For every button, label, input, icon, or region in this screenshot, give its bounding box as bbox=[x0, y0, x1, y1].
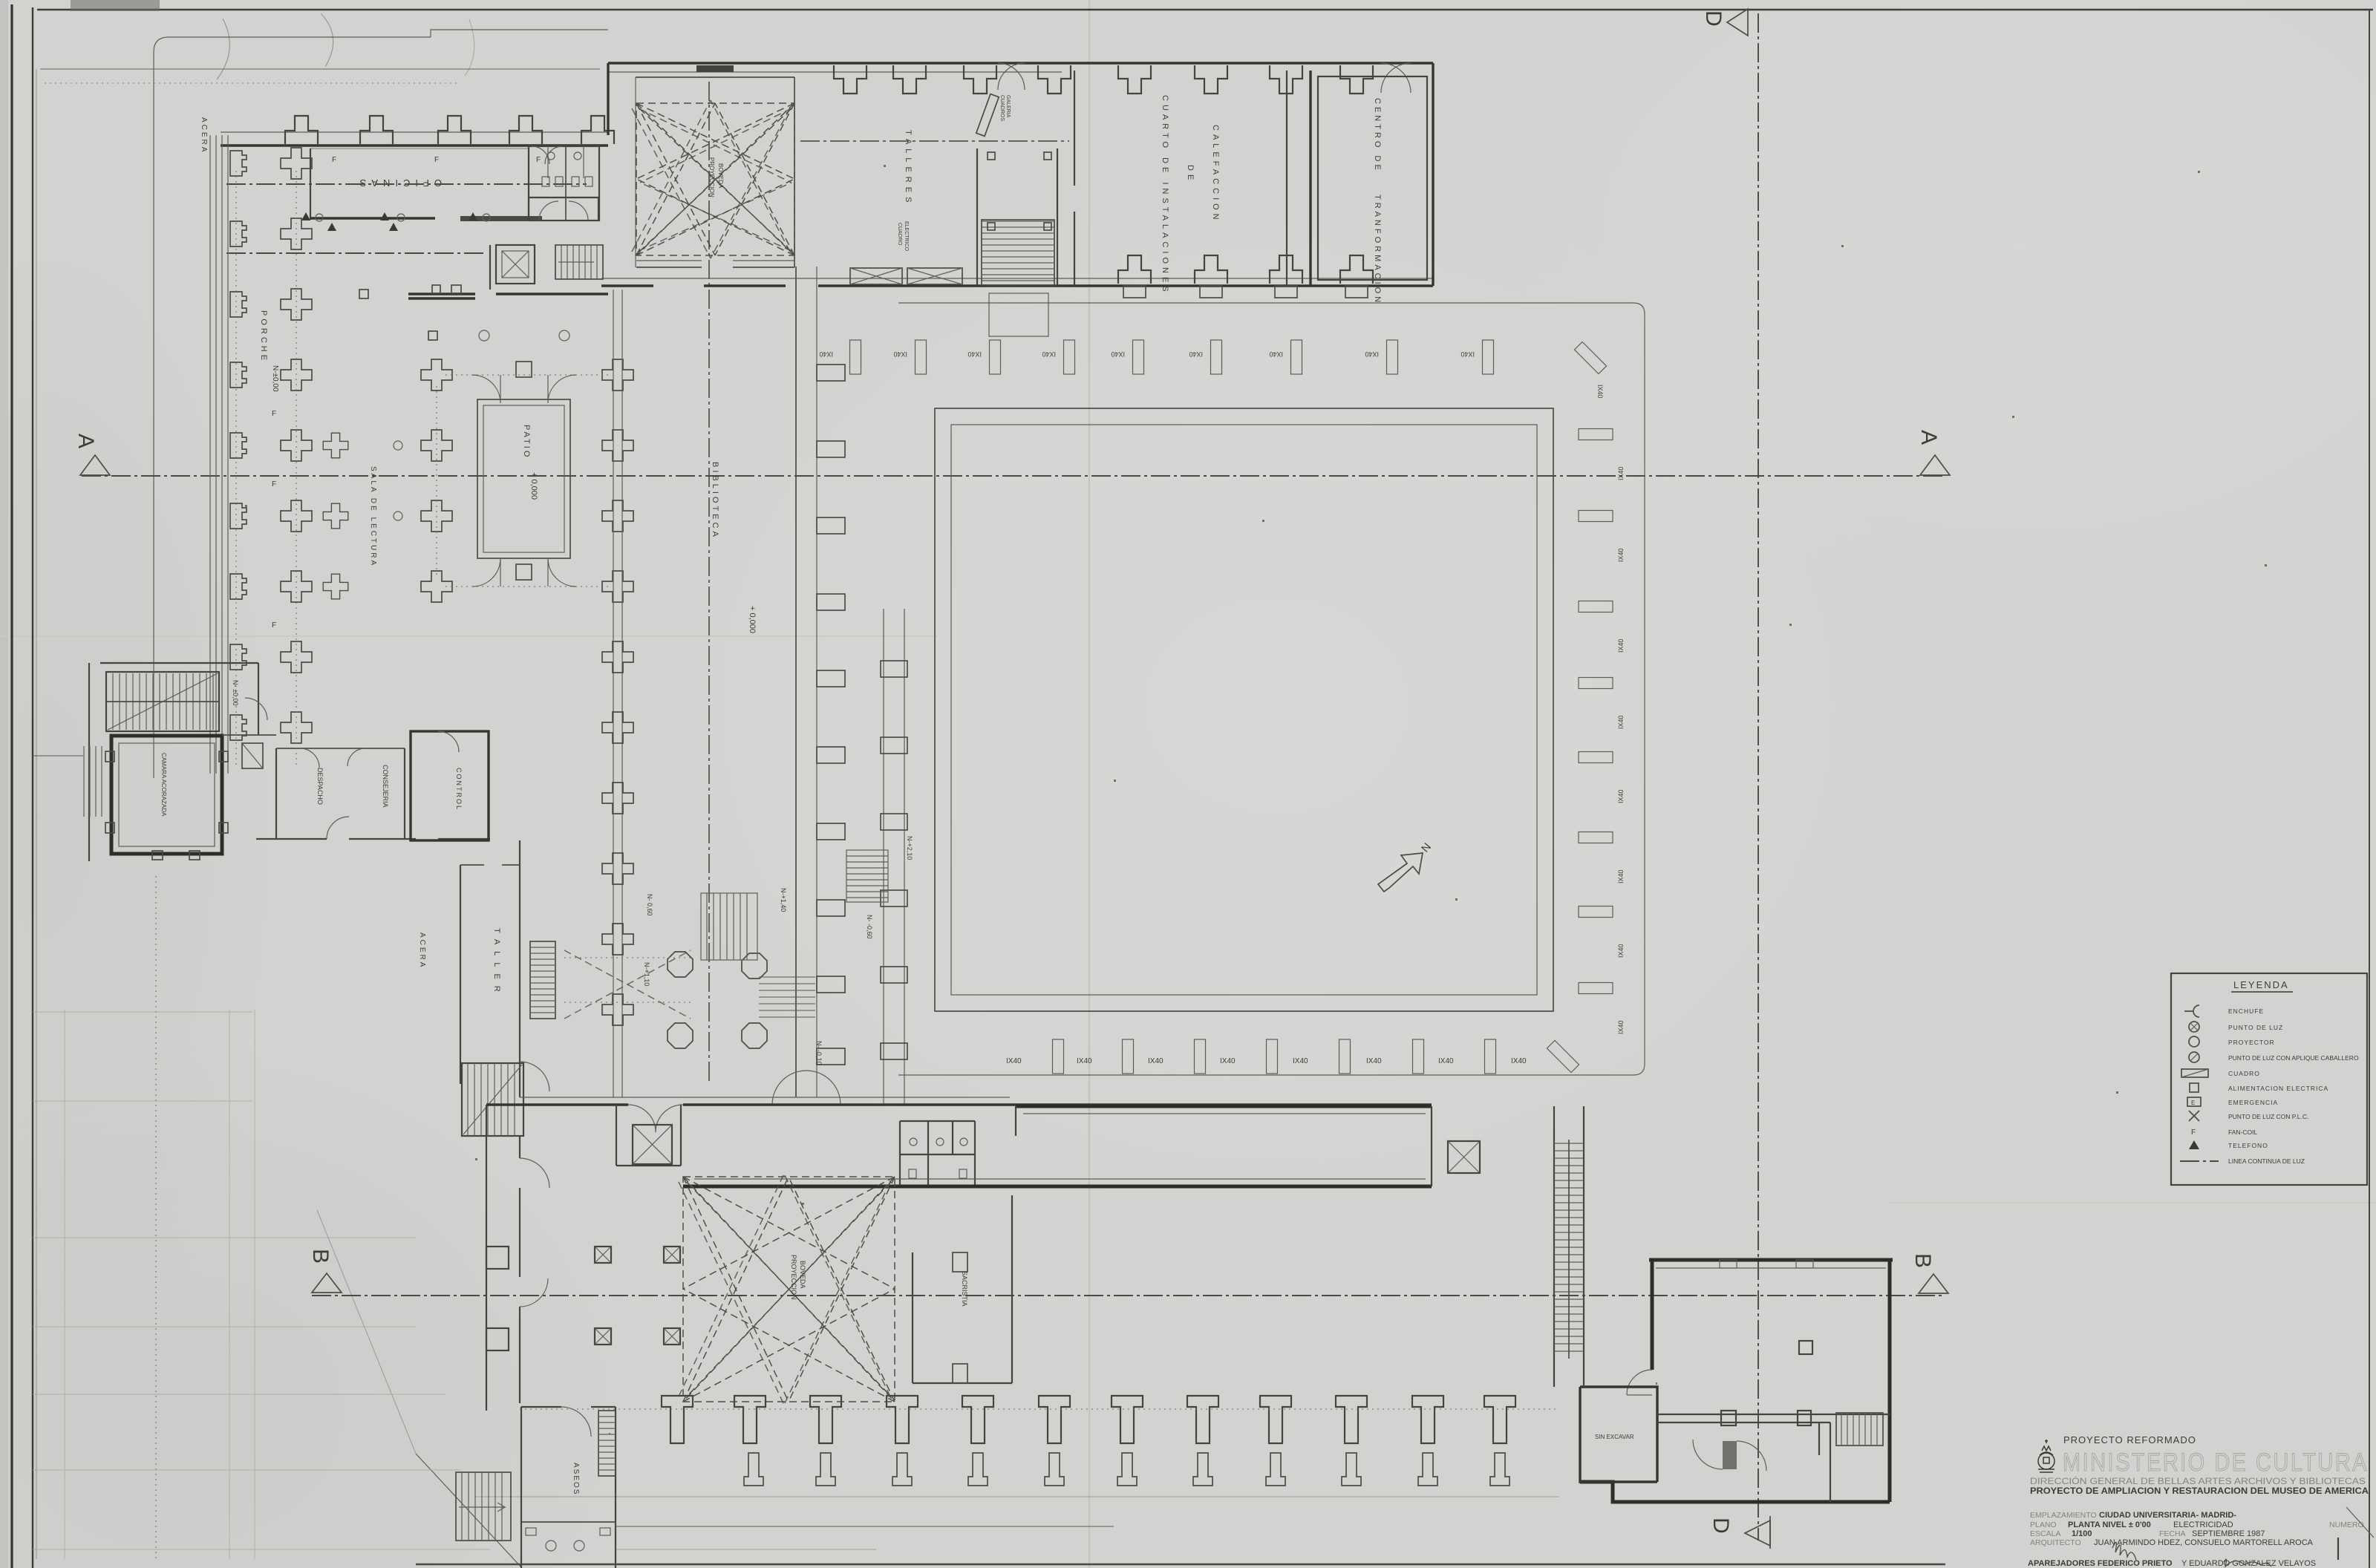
svg-text:CALEFACCION: CALEFACCION bbox=[1211, 125, 1220, 223]
svg-text:F: F bbox=[272, 480, 276, 489]
svg-text:SACRISTIA: SACRISTIA bbox=[961, 1271, 968, 1307]
svg-text:IX40: IX40 bbox=[1617, 466, 1625, 480]
svg-text:IX40: IX40 bbox=[1617, 944, 1625, 958]
svg-text:FAN-COIL: FAN-COIL bbox=[2228, 1128, 2257, 1136]
svg-text:IX40: IX40 bbox=[1365, 350, 1379, 358]
svg-text:E: E bbox=[2191, 1100, 2195, 1106]
svg-text:CONTROL: CONTROL bbox=[455, 768, 463, 811]
svg-text:B: B bbox=[1910, 1253, 1935, 1268]
svg-text:JUAN ARMINDO HDEZ, CONSUELO: JUAN ARMINDO HDEZ, CONSUELO MARTORELL AR… bbox=[2094, 1538, 2314, 1547]
svg-text:DE: DE bbox=[1186, 165, 1195, 183]
svg-text:TRANFORMACION: TRANFORMACION bbox=[1373, 195, 1382, 305]
svg-text:F: F bbox=[2191, 1128, 2196, 1137]
svg-text:SEPTIEMBRE 1987: SEPTIEMBRE 1987 bbox=[2192, 1529, 2265, 1538]
svg-text:ELECTRICO: ELECTRICO bbox=[904, 221, 909, 252]
svg-text:LINEA CONTINUA DE LUZ: LINEA CONTINUA DE LUZ bbox=[2228, 1157, 2305, 1165]
svg-text:IX40: IX40 bbox=[1111, 350, 1125, 358]
svg-text:PROYECCION: PROYECCION bbox=[790, 1255, 797, 1300]
svg-text:LEYENDA: LEYENDA bbox=[2233, 979, 2289, 990]
svg-text:N- 0,60: N- 0,60 bbox=[646, 894, 653, 916]
svg-text:CUADRO: CUADRO bbox=[897, 223, 902, 246]
svg-text:GALERIA: GALERIA bbox=[1005, 95, 1011, 118]
svg-text:DESPACHO: DESPACHO bbox=[316, 768, 324, 805]
svg-text:F: F bbox=[536, 156, 541, 164]
svg-text:IX40: IX40 bbox=[1220, 1057, 1236, 1065]
svg-text:F: F bbox=[332, 156, 336, 164]
svg-text:EMPLAZAMIENTO: EMPLAZAMIENTO bbox=[2030, 1511, 2097, 1520]
svg-text:DIRECCIÓN GENERAL DE BELLAS: DIRECCIÓN GENERAL DE BELLAS ARTES ARCHIV… bbox=[2030, 1477, 2366, 1486]
svg-text:CENTRO DE: CENTRO DE bbox=[1373, 98, 1382, 173]
svg-text:D: D bbox=[1701, 10, 1726, 27]
svg-text:PROYECTO DE AMPLIACION Y R: PROYECTO DE AMPLIACION Y RESTAURACION DE… bbox=[2030, 1487, 2369, 1496]
svg-text:ACERA: ACERA bbox=[200, 117, 208, 154]
svg-text:Y EDUARDO GONZALEZ VELAYOS: Y EDUARDO GONZALEZ VELAYOS bbox=[2181, 1559, 2316, 1568]
svg-text:CUADRO: CUADRO bbox=[2228, 1070, 2260, 1077]
svg-text:IX40: IX40 bbox=[1617, 789, 1625, 803]
svg-text:BIBLIOTECA: BIBLIOTECA bbox=[711, 462, 719, 540]
svg-text:MINISTERIO DE CULTURA: MINISTERIO DE CULTURA bbox=[2063, 1448, 2369, 1477]
svg-text:NUMERO: NUMERO bbox=[2329, 1520, 2364, 1529]
svg-text:OFICINAS: OFICINAS bbox=[355, 177, 442, 189]
svg-text:FECHA: FECHA bbox=[2159, 1529, 2186, 1538]
svg-text:PORCHE: PORCHE bbox=[259, 310, 268, 363]
svg-text:A: A bbox=[1916, 430, 1941, 445]
svg-text:BOVEDA: BOVEDA bbox=[799, 1261, 806, 1289]
svg-text:+ 0,000: + 0,000 bbox=[748, 606, 757, 633]
svg-text:PROYECTOR: PROYECTOR bbox=[2228, 1039, 2275, 1046]
svg-text:IX40: IX40 bbox=[1077, 1057, 1092, 1065]
svg-text:ACERA: ACERA bbox=[418, 932, 426, 969]
svg-text:EMERGENCIA: EMERGENCIA bbox=[2228, 1099, 2278, 1106]
svg-text:F: F bbox=[434, 156, 439, 164]
svg-text:IX40: IX40 bbox=[1148, 1057, 1163, 1065]
svg-text:F: F bbox=[272, 410, 276, 418]
svg-text:IX40: IX40 bbox=[1042, 350, 1056, 358]
svg-text:IX40: IX40 bbox=[819, 350, 833, 358]
svg-text:SALA DE LECTURA: SALA DE LECTURA bbox=[369, 466, 377, 567]
svg-text:IX40: IX40 bbox=[967, 350, 982, 358]
svg-text:CAMARA ACORAZADA: CAMARA ACORAZADA bbox=[160, 753, 167, 817]
svg-text:A: A bbox=[74, 434, 98, 448]
svg-text:PUNTO DE LUZ: PUNTO DE LUZ bbox=[2228, 1024, 2283, 1031]
svg-text:CUADROS: CUADROS bbox=[999, 95, 1005, 121]
svg-text:IX40: IX40 bbox=[1596, 385, 1604, 399]
svg-text:SIN EXCAVAR: SIN EXCAVAR bbox=[1595, 1434, 1634, 1440]
svg-text:IX40: IX40 bbox=[1460, 350, 1475, 358]
svg-text:IX40: IX40 bbox=[1617, 869, 1625, 883]
svg-text:PUNTO DE LUZ CON APLIQUE CABAL: PUNTO DE LUZ CON APLIQUE CABALLERO bbox=[2228, 1054, 2359, 1062]
svg-text:ELECTRICIDAD: ELECTRICIDAD bbox=[2173, 1520, 2233, 1529]
svg-text:PROYECTO REFORMADO: PROYECTO REFORMADO bbox=[2063, 1434, 2196, 1445]
svg-text:IX40: IX40 bbox=[1189, 350, 1203, 358]
svg-text:+ 0,000: + 0,000 bbox=[529, 472, 538, 500]
svg-text:IX40: IX40 bbox=[1006, 1057, 1022, 1065]
svg-text:ALIMENTACION ELECTRICA: ALIMENTACION ELECTRICA bbox=[2228, 1085, 2328, 1092]
svg-text:CIUDAD UNIVERSITARIA- MADRID-: CIUDAD UNIVERSITARIA- MADRID- bbox=[2099, 1511, 2236, 1520]
svg-text:IX40: IX40 bbox=[1293, 1057, 1308, 1065]
svg-text:N- -0,10: N- -0,10 bbox=[815, 1041, 823, 1065]
svg-text:IX40: IX40 bbox=[893, 350, 907, 358]
svg-text:N- -0,60: N- -0,60 bbox=[866, 915, 873, 939]
svg-text:BOVEDA: BOVEDA bbox=[717, 163, 724, 189]
svg-text:IX40: IX40 bbox=[1617, 638, 1625, 653]
svg-text:N-±0,00: N-±0,00 bbox=[271, 365, 279, 392]
svg-text:CONSEJERIA: CONSEJERIA bbox=[382, 765, 389, 808]
svg-text:PATIO: PATIO bbox=[522, 425, 531, 459]
svg-text:IX40: IX40 bbox=[1617, 1020, 1625, 1034]
svg-text:ENCHUFE: ENCHUFE bbox=[2228, 1007, 2264, 1015]
svg-text:PLANTA NIVEL ± 0'00: PLANTA NIVEL ± 0'00 bbox=[2068, 1520, 2151, 1529]
svg-text:TELEFONO: TELEFONO bbox=[2228, 1142, 2268, 1149]
svg-text:TALLER: TALLER bbox=[492, 928, 501, 999]
svg-text:IX40: IX40 bbox=[1269, 350, 1283, 358]
svg-text:IX40: IX40 bbox=[1366, 1057, 1382, 1065]
svg-text:CUARTO DE INSTALACIONES: CUARTO DE INSTALACIONES bbox=[1161, 95, 1169, 295]
svg-text:IX40: IX40 bbox=[1617, 715, 1625, 729]
svg-text:ESCALA: ESCALA bbox=[2030, 1529, 2060, 1538]
svg-text:F: F bbox=[272, 621, 276, 630]
svg-text:PLANO: PLANO bbox=[2030, 1520, 2057, 1529]
svg-text:N-+1,40: N-+1,40 bbox=[780, 888, 787, 912]
svg-text:1/100: 1/100 bbox=[2072, 1529, 2092, 1538]
svg-text:ASEOS: ASEOS bbox=[572, 1463, 580, 1495]
svg-text:D: D bbox=[1708, 1518, 1733, 1534]
svg-text:N-+1,10: N-+1,10 bbox=[643, 962, 650, 986]
svg-text:N- ±0,00: N- ±0,00 bbox=[232, 680, 239, 705]
svg-text:IX40: IX40 bbox=[1511, 1057, 1527, 1065]
svg-text:PUNTO DE LUZ CON P.L.C.: PUNTO DE LUZ CON P.L.C. bbox=[2228, 1113, 2308, 1120]
svg-text:N-+2,10: N-+2,10 bbox=[906, 836, 913, 860]
svg-text:PROYECCION: PROYECCION bbox=[708, 157, 715, 197]
svg-text:ARQUITECTO: ARQUITECTO bbox=[2030, 1538, 2081, 1547]
svg-text:IX40: IX40 bbox=[1438, 1057, 1454, 1065]
svg-text:B: B bbox=[308, 1249, 333, 1264]
svg-text:IX40: IX40 bbox=[1617, 548, 1625, 562]
svg-text:APAREJADORES FEDERICO PRIETO: APAREJADORES FEDERICO PRIETO bbox=[2028, 1559, 2173, 1568]
